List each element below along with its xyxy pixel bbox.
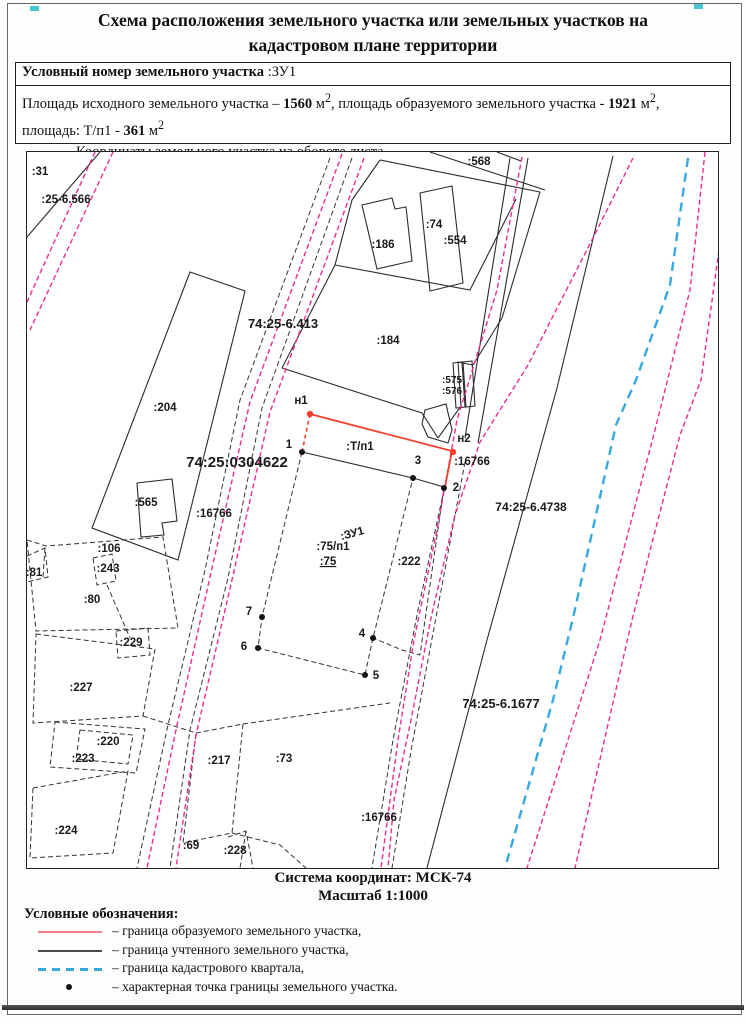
map-label: 6 [241,641,247,653]
parcel-number-label: Условный номер земельного участка [22,64,264,80]
map-label: 3 [415,455,421,467]
blue-dashed-swatch [38,968,102,971]
area-text-segment: , площадь образуемого земельного участка… [331,96,608,112]
area-text-segment: , [656,96,660,112]
legend-item-label: – граница учтенного земельного участка, [112,942,349,958]
map-label: :75/п1 [316,541,350,553]
parcel-info-box: Условный номер земельного участка :ЗУ1 П… [15,62,731,144]
map-label: :575 [442,375,462,386]
parcel-boundary-dashed [43,548,45,577]
coordinate-system: Система координат: МСК-74 [0,870,746,887]
legend-item-label: – граница образуемого земельного участка… [112,923,361,939]
area-text-segment: м [145,123,158,139]
map-label: 4 [359,628,366,640]
map-scale: Масштаб 1:1000 [0,888,746,905]
cadastral-map: :31:25-6.566:568:186:74:55474:25-6.413:1… [26,151,719,869]
map-label: :69 [183,840,200,852]
boundary-point-н1 [307,411,313,417]
map-label: 74:25:0304622 [186,454,288,471]
legend-item: – граница учтенного земельного участка, [24,942,724,961]
map-label: :554 [443,235,467,247]
boundary-point-н2 [450,449,456,455]
formed-parcel-boundary [310,414,452,487]
map-label: :75 [320,556,337,568]
area-text-segment: 361 [123,123,145,139]
page-bottom-edge [2,1005,744,1010]
map-label: :568 [467,156,491,168]
red-line-swatch [38,931,102,933]
boundary-point-2 [441,485,447,491]
parcel-number-value: :ЗУ1 [264,64,296,80]
area-text-segment: 2 [158,118,164,132]
map-label: :16766 [196,508,232,520]
map-label: :220 [96,736,119,748]
scanned-cadastral-document: { "title_line1": "Схема расположения зем… [0,0,746,1024]
parcel-boundary-solid [362,198,412,269]
cadastral-map-drawing: :31:25-6.566:568:186:74:55474:25-6.413:1… [27,152,718,868]
black-line-swatch [38,950,102,953]
map-label: 7 [246,606,252,618]
map-label: :228 [223,845,247,857]
map-label: :106 [97,543,120,555]
boundary-point-4 [370,635,376,641]
map-label: :184 [376,335,400,347]
parcel-boundary-solid [302,452,444,487]
parcel-boundary-solid [497,152,521,161]
map-label: :81 [27,567,43,579]
map-label: :Т/п1 [346,441,374,453]
parcel-number-row: Условный номер земельного участка :ЗУ1 [16,63,730,86]
boundary-point-7 [259,614,265,620]
legend-item: – граница образуемого земельного участка… [24,923,724,942]
legend: Условные обозначения: – граница образуем… [24,906,724,997]
map-label: :25-6.566 [41,194,90,206]
map-label: 5 [373,670,380,682]
map-label: :31 [32,166,49,178]
parcel-boundary-dashed [137,158,330,868]
legend-item: – характерная точка границы земельного у… [24,979,724,998]
area-text-segment: Площадь исходного земельного участка – [22,96,283,112]
area-text-segment: 1560 [283,96,312,112]
boundary-point-3 [410,475,416,481]
map-label: 2 [453,482,459,494]
area-text-segment: м [312,96,325,112]
magenta-boundary-dashed [30,152,113,330]
parcel-boundary-dashed [243,703,390,724]
parcel-boundary-dashed [392,462,465,868]
parcel-area-row: Площадь исходного земельного участка – 1… [16,86,730,142]
formed-parcel-boundary-dashed [302,414,310,452]
map-label: :222 [397,556,420,568]
map-label: 74:25-6.4738 [495,500,567,514]
map-label: :576 [442,386,462,397]
map-label: :80 [84,594,101,606]
map-label: :16766 [361,812,397,824]
legend-item-label: – характерная точка границы земельного у… [112,979,397,995]
map-label: :16766 [454,456,490,468]
boundary-point-1 [299,449,305,455]
legend-rows: – граница образуемого земельного участка… [24,923,724,997]
map-label: :224 [54,825,78,837]
map-label: :204 [153,402,177,414]
map-label: :223 [71,753,94,765]
parcel-boundary-dashed [30,771,128,858]
map-label: :227 [69,682,92,694]
map-label: :74 [426,219,443,231]
area-text-segment: м [637,96,650,112]
parcel-boundary-solid [380,160,540,192]
map-label: :217 [207,755,230,767]
map-label: 74:25-6.413 [248,316,318,331]
page-title: Схема расположения земельного участка ил… [0,8,746,58]
map-label: 74:25-6.1677 [462,696,539,711]
parcel-boundary-dashed [183,724,243,843]
map-label: :186 [371,239,394,251]
map-label: н2 [457,433,470,445]
map-label: :73 [276,753,293,765]
black-dot-swatch [66,984,72,990]
boundary-point-6 [255,645,261,651]
page-title-line1: Схема расположения земельного участка ил… [0,8,746,33]
page-title-line2: кадастровом плане территории [0,33,746,58]
map-label: :243 [96,563,119,575]
map-label: :565 [134,497,158,509]
boundary-point-5 [362,672,368,678]
map-label: н1 [294,395,308,407]
legend-title: Условные обозначения: [24,906,724,923]
legend-item-label: – граница кадастрового квартала, [112,960,304,976]
map-label: 1 [286,439,293,451]
legend-item: – граница кадастрового квартала, [24,960,724,979]
map-label: :229 [119,637,142,649]
area-text-segment: 1921 [608,96,637,112]
magenta-boundary-dashed [575,250,718,868]
area-text-segment: площадь: Т/п1 - [22,123,123,139]
